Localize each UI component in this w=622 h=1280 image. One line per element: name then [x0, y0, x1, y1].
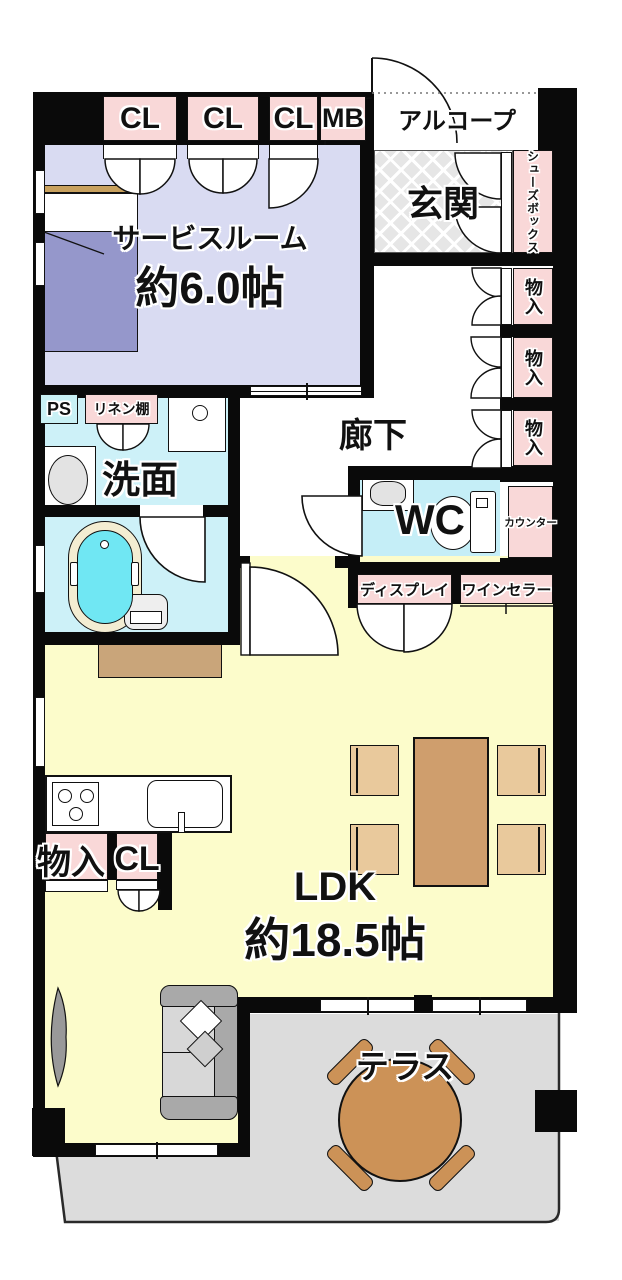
shoe-box-label: シューズボックス [525, 150, 542, 254]
corridor-text: 廊下 [339, 408, 407, 457]
wall-corridor-ldk [335, 556, 360, 568]
bed-headboard [42, 185, 138, 193]
bath-stool-seat [130, 611, 162, 624]
wall-bath-divider [45, 505, 140, 517]
corridor-label: 廊下 [328, 410, 418, 454]
dining-chair [350, 745, 399, 796]
kitchen-back-counter [98, 643, 222, 678]
linen-shelf-box: リネン棚 [85, 394, 158, 424]
window [35, 545, 45, 593]
closet-door-strip [103, 145, 177, 159]
wall-ldk-terrace [238, 997, 250, 1157]
wall-bath-bottom [33, 632, 240, 645]
alcove-label: アルコープ [378, 100, 536, 136]
sliding-door-tick [306, 383, 308, 400]
hall-storage-2: 物入 [513, 337, 553, 398]
closet-door-strip [116, 880, 158, 890]
wall-window-pillar [414, 995, 432, 1013]
wall-corner-block [32, 1108, 65, 1156]
washroom-label: 洗面 [70, 452, 210, 500]
counter-label: カウンター [504, 515, 557, 530]
chair-backrest [538, 827, 540, 872]
kitchen-storage-text: 物入 [37, 835, 105, 884]
wall-washroom-right [228, 390, 240, 645]
service-room-size: 約6.0帖 [90, 258, 330, 310]
window-tick [367, 997, 369, 1015]
alcove-text: アルコープ [398, 101, 516, 136]
storage-door-strip [501, 410, 512, 468]
meter-box-label: MB [322, 103, 364, 134]
closet-box-2: CL [187, 96, 259, 141]
storage-door-strip [501, 337, 512, 398]
window [35, 242, 45, 286]
sofa-armrest-bottom [160, 1096, 238, 1120]
hall-storage-1-label: 物入 [520, 278, 546, 316]
wall-wc-bottom [348, 562, 557, 574]
hall-storage-1: 物入 [513, 268, 553, 325]
bathtub-grip-right [131, 562, 139, 586]
window [95, 1144, 218, 1156]
wall-divider [500, 466, 557, 482]
display-box: ディスプレイ [357, 574, 452, 604]
closet-3-label: CL [274, 102, 314, 136]
closet-box-1: CL [103, 96, 177, 141]
wine-cellar-label: ワインセラー [461, 579, 551, 600]
chair-backrest [356, 748, 358, 793]
wall-wc-top [348, 466, 500, 480]
stove-burner-2 [80, 789, 94, 803]
hall-storage-3: 物入 [513, 410, 553, 466]
wc-text: WC [395, 496, 465, 544]
closet-1-label: CL [120, 102, 160, 136]
window [432, 999, 527, 1012]
closet-door-strip [269, 145, 318, 159]
pipe-space-box: PS [40, 394, 78, 424]
dining-chair [497, 824, 546, 875]
floor-plan: CL CL CL MB シューズボックス 物入 物入 物入 カウンター PS リ… [0, 0, 622, 1280]
chair-backrest [538, 748, 540, 793]
kitchen-faucet [178, 812, 185, 833]
washroom-text: 洗面 [102, 449, 178, 504]
closet-box-3: CL [269, 96, 318, 141]
vanity-bowl [192, 405, 208, 421]
hall-storage-3-label: 物入 [520, 419, 546, 457]
display-label: ディスプレイ [360, 579, 449, 600]
kitchen-closet-label: CL [106, 838, 168, 880]
service-room-size-text: 約6.0帖 [135, 252, 284, 316]
sliding-door [250, 386, 362, 396]
pipe-space-label: PS [47, 399, 71, 420]
closet-2-label: CL [203, 102, 243, 136]
shoe-box: シューズボックス [513, 150, 553, 253]
terrace-text: テラス [356, 1040, 454, 1088]
wall-entrance-bottom [374, 253, 557, 266]
entrance-text: 玄関 [407, 175, 479, 227]
kitchen-closet-text: CL [114, 840, 159, 879]
window [35, 697, 45, 767]
dining-chair [497, 745, 546, 796]
meter-box: MB [320, 96, 366, 141]
bathtub-drain [100, 540, 109, 549]
service-room-name-text: サービスルーム [112, 217, 307, 257]
wall-display-divider [452, 574, 460, 604]
terrace-label: テラス [335, 1042, 475, 1086]
shoebox-door-strip [501, 152, 512, 253]
wc-label: WC [390, 494, 470, 546]
service-room-name: サービスルーム [75, 220, 345, 254]
window-tick [479, 997, 481, 1015]
toilet-button [476, 498, 488, 508]
kitchen-sink [147, 780, 223, 828]
counter-box: カウンター [508, 486, 553, 558]
window-tick [156, 1142, 158, 1159]
entrance-label: 玄関 [388, 178, 498, 224]
wall-bath-divider [203, 505, 228, 517]
hall-storage-2-label: 物入 [520, 349, 546, 387]
stove-burner-1 [58, 789, 72, 803]
ldk-name-text: LDK [294, 865, 376, 910]
wine-cellar-box: ワインセラー [460, 574, 553, 604]
wall-right [553, 88, 577, 1013]
ldk-size: 約18.5帖 [170, 910, 500, 964]
linen-shelf-label: リネン棚 [94, 399, 150, 419]
window [35, 170, 45, 214]
wall-divider [500, 398, 557, 410]
bathtub-grip-left [70, 562, 78, 586]
stove-burner-3 [69, 807, 83, 821]
closet-door-strip [187, 145, 259, 159]
storage-door-strip [501, 268, 512, 325]
wall-divider [500, 325, 557, 337]
vanity-sink [168, 394, 226, 452]
ldk-size-text: 約18.5帖 [244, 904, 426, 970]
terrace-pillar [535, 1090, 577, 1132]
window [320, 999, 416, 1012]
wall-corridor-ldk [240, 556, 250, 568]
